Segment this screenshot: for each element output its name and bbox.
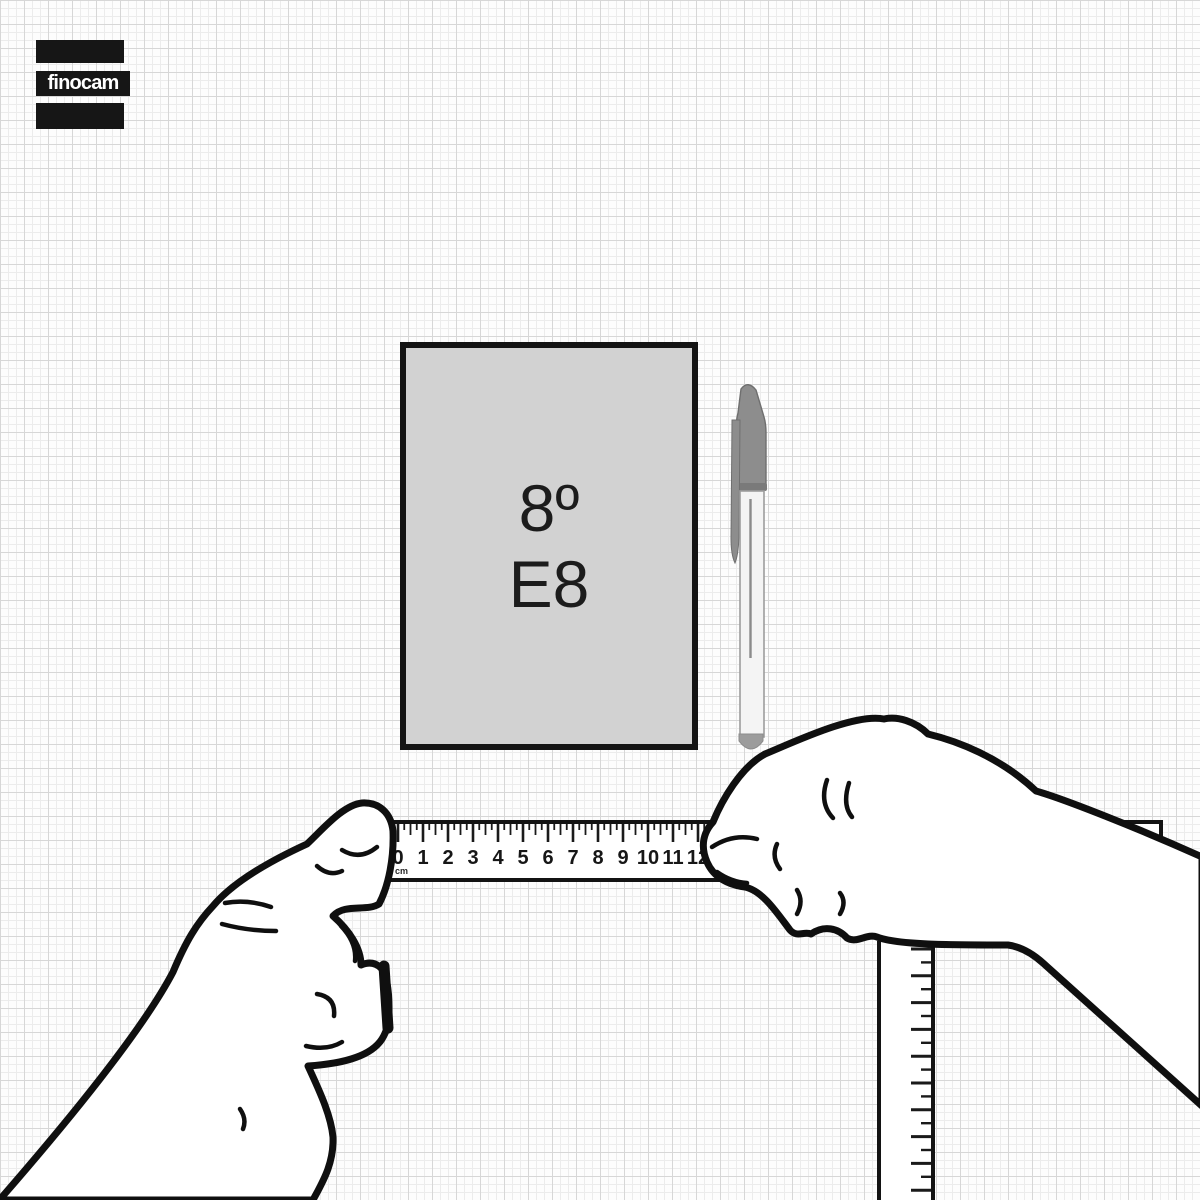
right-hand-illustration bbox=[703, 718, 1200, 1106]
notebook-code-label: E8 bbox=[509, 551, 590, 617]
notebook-size-swatch: 8º E8 bbox=[400, 342, 698, 750]
ruler-number: 11 bbox=[662, 848, 683, 868]
pen-clip bbox=[731, 420, 740, 563]
ruler-number: 3 bbox=[467, 848, 478, 868]
ruler-number: 10 bbox=[637, 848, 659, 868]
brand-logo: finocam bbox=[36, 40, 124, 129]
ruler-number: 9 bbox=[617, 848, 628, 868]
ruler-number: 2 bbox=[442, 848, 453, 868]
vertical-ruler bbox=[877, 941, 935, 1200]
left-hand-knuckle-edge bbox=[384, 966, 388, 1028]
ruler-number: 12 bbox=[687, 848, 709, 868]
vertical-ruler-ticks bbox=[881, 941, 931, 1200]
horizontal-ruler-numbers: 0123456789101112 bbox=[339, 824, 1159, 878]
ruler-number: 7 bbox=[567, 848, 578, 868]
ruler-number: 1 bbox=[417, 848, 428, 868]
graph-paper-background: finocam 8º E8 0123456789101112 cm bbox=[0, 0, 1200, 1200]
ruler-number: 6 bbox=[542, 848, 553, 868]
horizontal-ruler: 0123456789101112 cm bbox=[335, 820, 1163, 882]
pen-cap bbox=[736, 385, 766, 491]
pen-illustration bbox=[731, 385, 767, 749]
ruler-number: 5 bbox=[517, 848, 528, 868]
pen-cap-rim bbox=[734, 483, 767, 491]
logo-bottom-band bbox=[36, 103, 124, 129]
ruler-number: 0 bbox=[392, 848, 403, 868]
brand-logo-text: finocam bbox=[47, 73, 118, 94]
ruler-number: 8 bbox=[592, 848, 603, 868]
ruler-number: 4 bbox=[492, 848, 503, 868]
logo-middle-band: finocam bbox=[36, 71, 130, 96]
logo-top-band bbox=[36, 40, 124, 63]
pen-end-plug bbox=[739, 734, 763, 749]
pen-barrel bbox=[740, 491, 764, 737]
ruler-unit-label: cm bbox=[395, 866, 408, 876]
notebook-size-label: 8º bbox=[519, 475, 580, 541]
